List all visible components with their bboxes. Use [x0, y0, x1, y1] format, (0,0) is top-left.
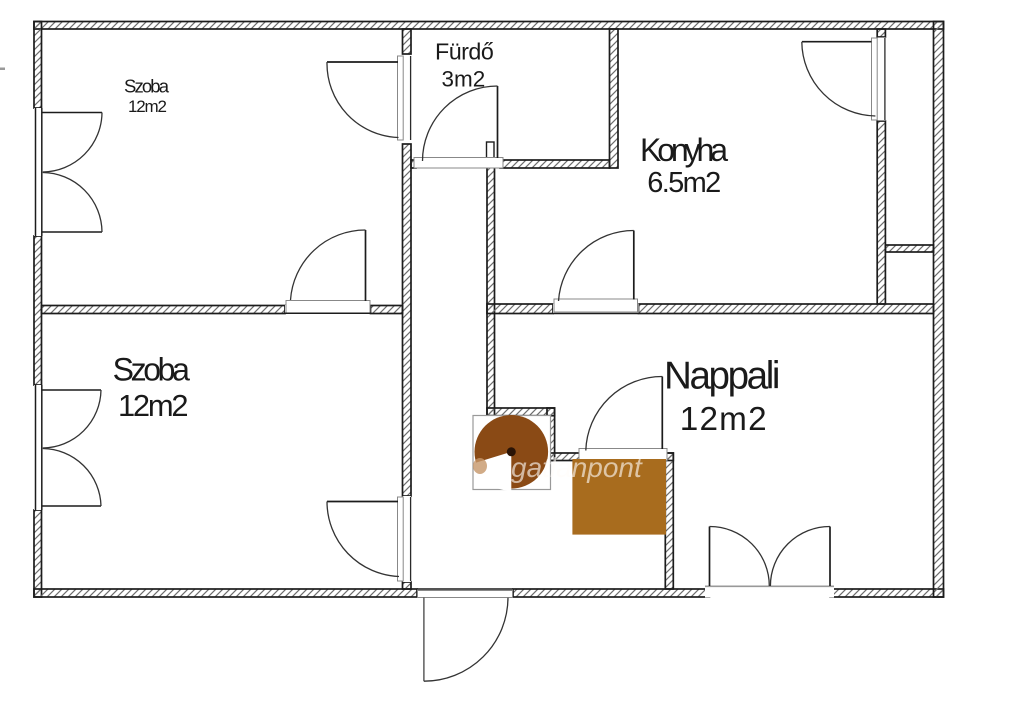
svg-text:Szoba: Szoba	[124, 76, 170, 97]
svg-text:Szoba: Szoba	[113, 351, 191, 387]
svg-text:12m2: 12m2	[128, 97, 167, 116]
svg-text:12m2: 12m2	[680, 401, 767, 438]
svg-text:Fürdő: Fürdő	[435, 38, 494, 64]
svg-text:3m2: 3m2	[442, 66, 486, 91]
svg-text:12m2: 12m2	[118, 388, 189, 423]
svg-text:6.5m2: 6.5m2	[647, 167, 721, 199]
svg-text:gatlanpont: gatlanpont	[511, 452, 643, 483]
svg-text:Nappali: Nappali	[664, 355, 781, 398]
svg-text:Konyha: Konyha	[640, 132, 728, 168]
